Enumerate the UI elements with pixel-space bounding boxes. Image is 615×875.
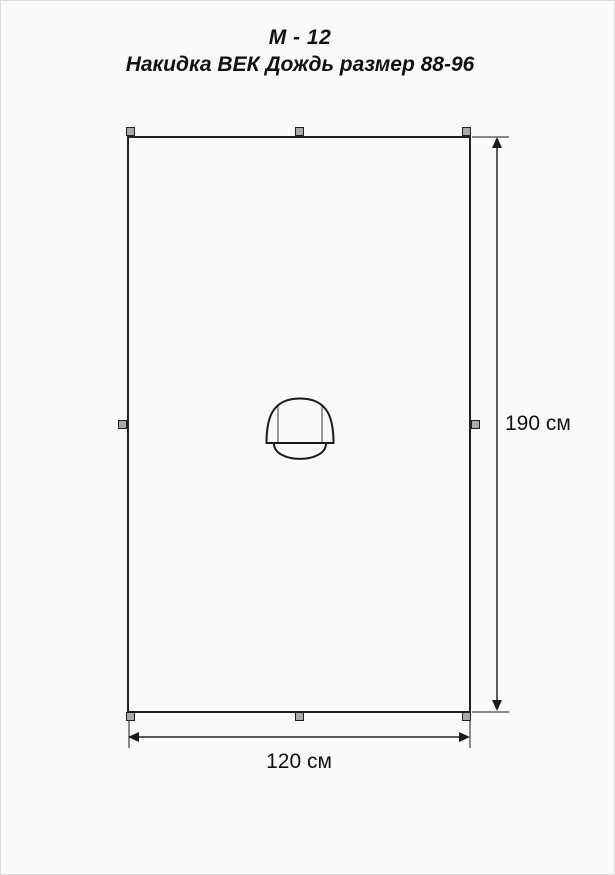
snap-square-bottom-left <box>126 712 135 721</box>
arrow-left-icon <box>128 732 139 742</box>
snap-square-top-left <box>126 127 135 136</box>
width-dimension-line <box>136 736 463 738</box>
page-subtitle: Накидка ВЕК Дождь размер 88-96 <box>0 53 600 77</box>
arrow-down-icon <box>492 700 502 711</box>
height-dimension-label: 190 см <box>505 412 571 436</box>
hood-neck-opening <box>274 444 326 459</box>
page-title: М - 12 <box>0 26 600 50</box>
arrow-right-icon <box>459 732 470 742</box>
width-dimension-label: 120 см <box>129 750 469 774</box>
hood-outline <box>267 399 334 444</box>
extension-line-top <box>472 136 509 138</box>
title-block: М - 12 Накидка ВЕК Дождь размер 88-96 <box>0 26 600 77</box>
hood-drawing <box>258 392 344 466</box>
arrow-up-icon <box>492 137 502 148</box>
extension-line-bottom <box>472 711 509 713</box>
snap-square-top-center <box>295 127 304 136</box>
snap-square-bottom-center <box>295 712 304 721</box>
height-dimension-line <box>496 145 498 703</box>
snap-square-top-right <box>462 127 471 136</box>
pattern-sheet: М - 12 Накидка ВЕК Дождь размер 88-96 19… <box>0 0 615 875</box>
snap-square-middle-left <box>118 420 127 429</box>
snap-square-bottom-right <box>462 712 471 721</box>
snap-square-middle-right <box>471 420 480 429</box>
